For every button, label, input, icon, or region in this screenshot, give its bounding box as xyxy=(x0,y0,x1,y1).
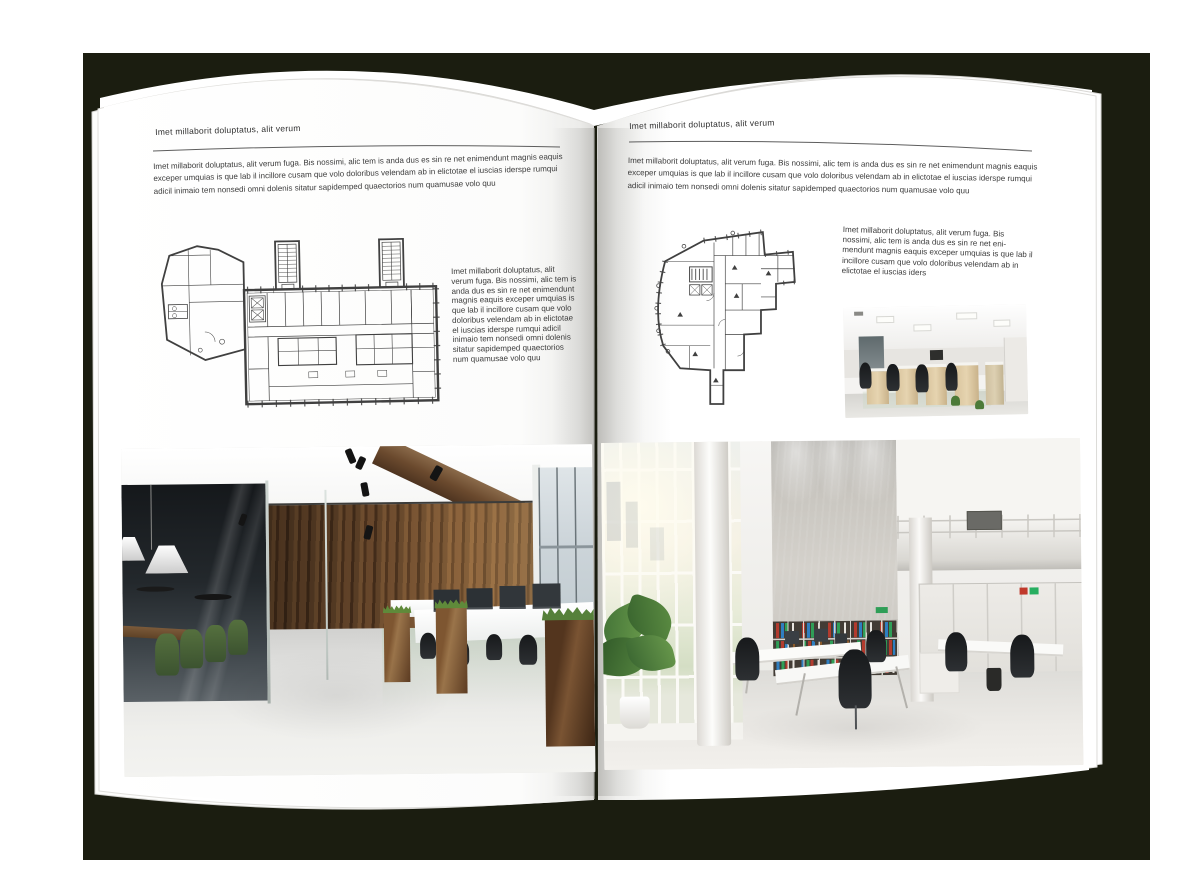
floor-plan-left-lines xyxy=(161,238,438,406)
side-partition xyxy=(1004,337,1028,401)
office-chair xyxy=(1010,635,1034,678)
ceiling-light xyxy=(993,320,1010,327)
column xyxy=(694,442,731,746)
ceiling-light xyxy=(957,312,977,320)
waste-bin xyxy=(987,668,1002,691)
floor-shadow xyxy=(723,701,987,756)
green-chair xyxy=(180,629,203,668)
office-chair xyxy=(886,364,899,391)
ceiling-light xyxy=(913,324,932,332)
office-chair xyxy=(486,634,503,660)
right-page-side-text: Imet millaborit doluptatus, alit verum f… xyxy=(842,225,1035,282)
monitor xyxy=(466,588,492,610)
wood-cabinet xyxy=(985,362,1004,405)
floor-plan-right-drawing xyxy=(652,226,807,412)
right-page-small-photo xyxy=(843,304,1028,418)
concrete-wall xyxy=(771,440,897,621)
monitor xyxy=(499,586,525,610)
brochure-mockup: Imet millaborit doluptatus, alit verum I… xyxy=(0,0,1200,891)
small-plant xyxy=(951,396,960,406)
office-chair xyxy=(916,365,929,393)
green-chair xyxy=(155,634,180,675)
floor-plan-right-lines xyxy=(655,231,795,404)
office-chair xyxy=(945,632,967,671)
city-building xyxy=(626,501,638,547)
green-chair xyxy=(228,620,248,655)
first-aid-sign xyxy=(1019,587,1028,594)
office-chair xyxy=(945,363,958,391)
floor-plan-left xyxy=(158,237,442,415)
wood-planter-foreground xyxy=(544,615,595,747)
plant-pot xyxy=(620,696,650,729)
monitor xyxy=(814,629,828,642)
ceiling-light xyxy=(876,316,895,324)
office-chair-foreground xyxy=(838,649,872,708)
exit-sign xyxy=(876,607,888,614)
office-chair xyxy=(866,630,885,663)
city-building xyxy=(606,482,621,541)
right-page-intro: Imet millaborit doluptatus, alit verum f… xyxy=(627,155,1038,199)
left-page-side-text: Imet millaborit doluptatus, alit verum f… xyxy=(451,264,579,364)
ceiling-vent xyxy=(854,312,863,315)
floor-plan-left-drawing xyxy=(158,237,441,410)
office-chair xyxy=(735,638,759,681)
small-plant xyxy=(975,400,984,410)
right-header-rule xyxy=(628,139,1034,153)
right-page-photo xyxy=(601,438,1083,770)
office-chair xyxy=(859,362,872,389)
office-chair xyxy=(519,635,538,665)
left-page-photo xyxy=(121,444,595,777)
exit-sign xyxy=(1030,587,1039,594)
floor-shadow xyxy=(217,649,453,743)
monitor xyxy=(532,584,561,609)
city-building xyxy=(650,527,665,560)
potted-plant xyxy=(601,599,681,724)
air-grille xyxy=(966,511,1001,530)
floor-plan-right xyxy=(652,226,807,417)
wall-screen xyxy=(930,350,943,360)
monitor xyxy=(785,631,799,644)
